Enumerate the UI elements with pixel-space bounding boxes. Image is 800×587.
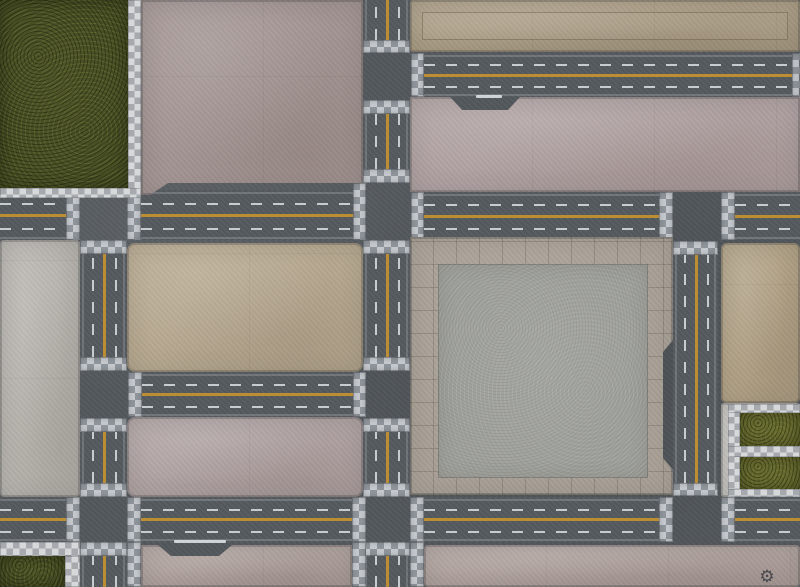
road-bottom-horizontal-seg-4 <box>735 497 800 542</box>
road-center-vertical-seg-1 <box>363 0 410 40</box>
crosswalk <box>363 357 410 371</box>
crosswalk <box>411 53 424 97</box>
sidewalk-border <box>728 489 800 497</box>
crosswalk <box>66 497 80 542</box>
road-mid-horizontal <box>142 372 353 417</box>
grass-lot-bottom-left <box>0 556 65 587</box>
crosswalk <box>80 418 127 432</box>
crosswalk <box>80 483 127 497</box>
road-west-horizontal-seg-2 <box>141 190 353 240</box>
road-east-horizontal-seg-2 <box>735 192 800 240</box>
crosswalk <box>659 192 673 240</box>
road-center-vertical-seg-3 <box>363 254 410 357</box>
crosswalk <box>363 418 410 432</box>
city-block-left-gray <box>0 240 80 497</box>
road-left-vertical-seg-3 <box>80 556 127 587</box>
crosswalk <box>721 497 735 542</box>
sidewalk-strip <box>352 542 366 587</box>
sidewalk-border <box>728 446 800 457</box>
road-left-vertical-seg-2 <box>80 432 127 483</box>
stop-bar <box>174 540 226 543</box>
city-block-bottom-right <box>424 545 800 587</box>
crosswalk <box>352 497 366 542</box>
road-left-vertical-seg-1 <box>80 254 127 357</box>
crosswalk <box>659 497 673 542</box>
crosswalk <box>80 357 127 371</box>
city-block-top-right-roof <box>410 0 800 52</box>
crosswalk <box>80 240 127 254</box>
crosswalk <box>363 40 410 53</box>
stop-bar <box>476 95 502 98</box>
crosswalk <box>721 192 735 240</box>
crosswalk <box>410 497 424 542</box>
grass-lot-top-left <box>0 0 128 188</box>
crosswalk <box>80 542 127 556</box>
crosswalk <box>411 192 424 240</box>
city-streets-gaming-mat: ⚙ <box>0 0 800 587</box>
central-tiled-plaza <box>410 237 673 495</box>
sidewalk-border <box>0 542 80 556</box>
road-east-horizontal-seg-1 <box>424 192 659 240</box>
road-bottom-horizontal-seg-1 <box>0 497 66 542</box>
crosswalk <box>363 483 410 497</box>
city-block-middle-tan <box>127 243 363 372</box>
gear-logo-icon: ⚙ <box>756 566 778 587</box>
road-top-right-horizontal <box>424 53 792 97</box>
crosswalk <box>363 240 410 254</box>
city-block-top-middle <box>141 0 363 195</box>
grass-lot-bottom-right-1 <box>740 413 800 446</box>
sidewalk-border <box>0 188 141 198</box>
crosswalk <box>353 372 366 417</box>
crosswalk <box>363 100 410 114</box>
city-block-right-upper <box>410 97 800 192</box>
sidewalk-border <box>65 556 80 587</box>
sidewalk-border <box>128 0 141 198</box>
road-center-vertical-seg-5 <box>363 556 410 587</box>
crosswalk <box>353 183 366 240</box>
city-block-middle-pink <box>127 417 363 497</box>
sidewalk-edge <box>792 53 800 97</box>
city-block-right-middle <box>721 243 800 403</box>
road-bottom-horizontal-seg-2 <box>141 497 352 542</box>
road-bottom-horizontal-seg-3 <box>424 497 659 542</box>
sidewalk-strip <box>127 542 141 587</box>
road-center-vertical-seg-4 <box>363 432 410 483</box>
crosswalk <box>673 241 718 255</box>
sidewalk-strip <box>410 542 424 587</box>
crosswalk <box>128 372 142 417</box>
road-center-vertical-seg-2 <box>363 114 410 169</box>
crosswalk <box>363 169 410 183</box>
road-right-vertical <box>673 255 718 483</box>
grass-lot-bottom-right-2 <box>740 457 800 489</box>
crosswalk <box>673 483 718 496</box>
crosswalk <box>127 497 141 542</box>
sidewalk-border <box>728 404 800 413</box>
crosswalk <box>363 542 410 556</box>
